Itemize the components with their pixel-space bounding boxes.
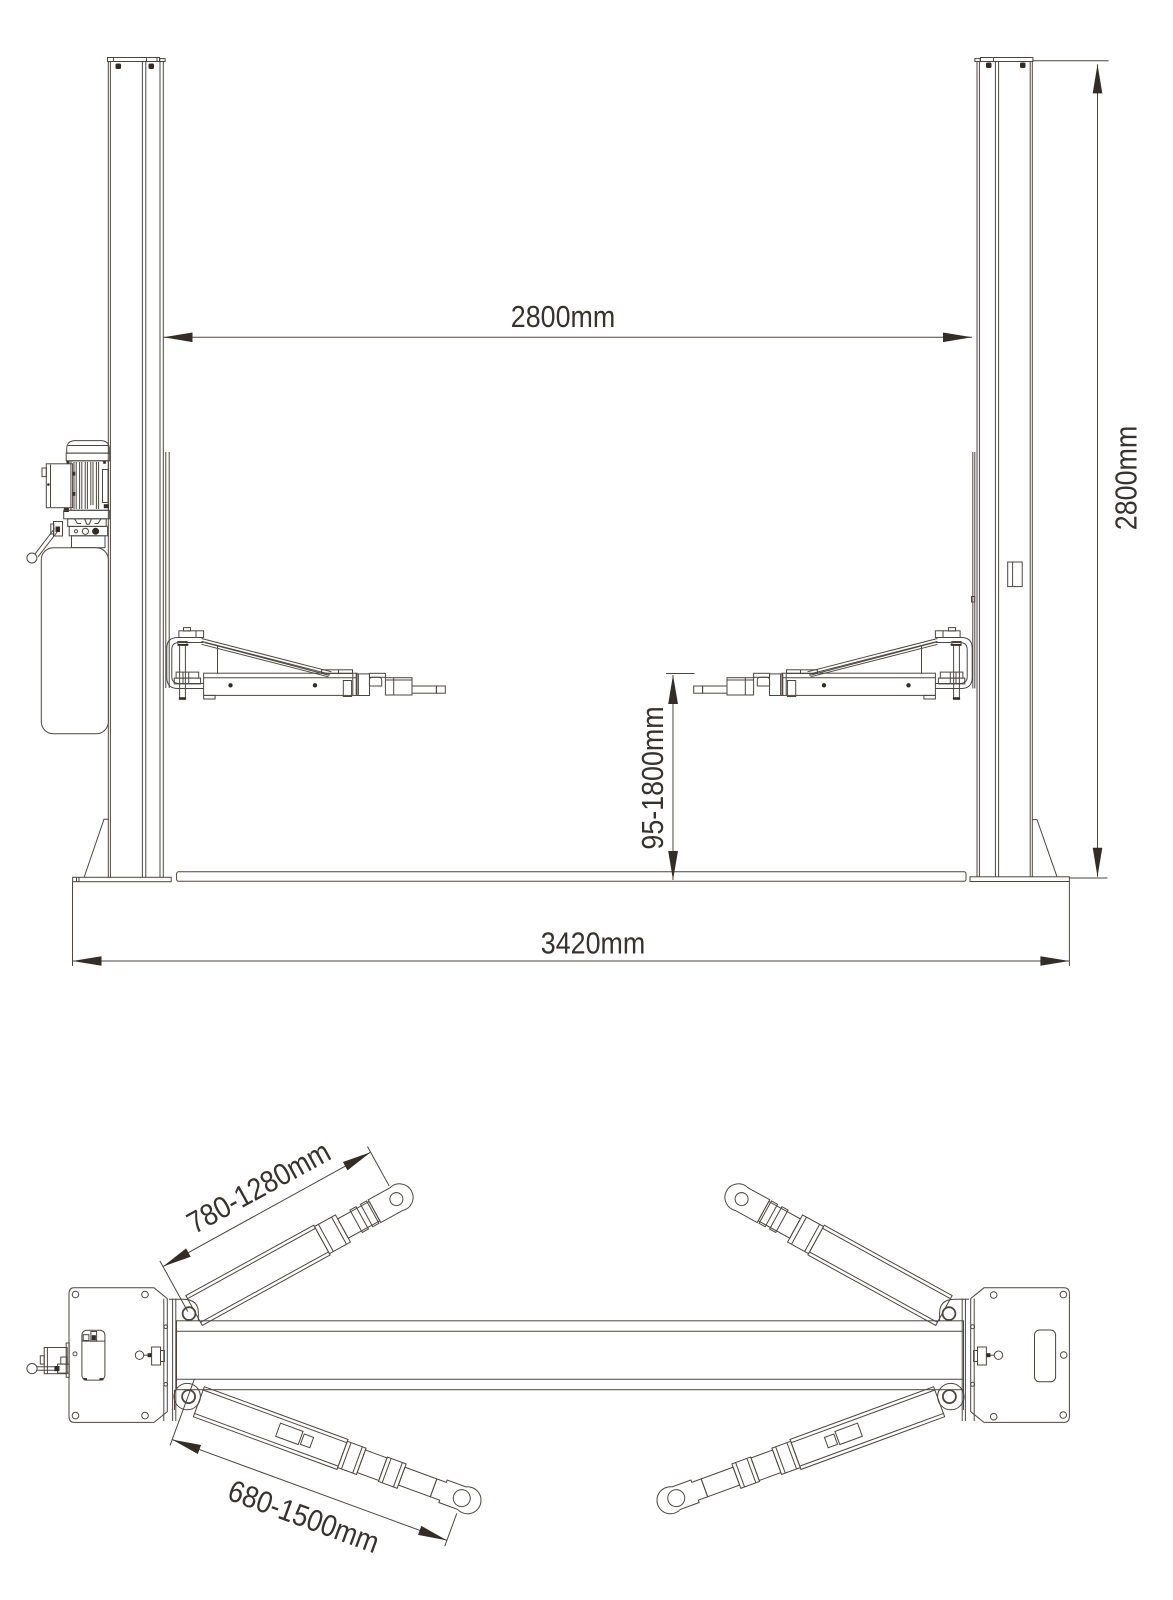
svg-text:3420mm: 3420mm	[541, 927, 645, 961]
svg-text:2800mm: 2800mm	[511, 300, 615, 334]
svg-text:2800mm: 2800mm	[1110, 426, 1144, 530]
svg-text:95-1800mm: 95-1800mm	[636, 706, 670, 849]
